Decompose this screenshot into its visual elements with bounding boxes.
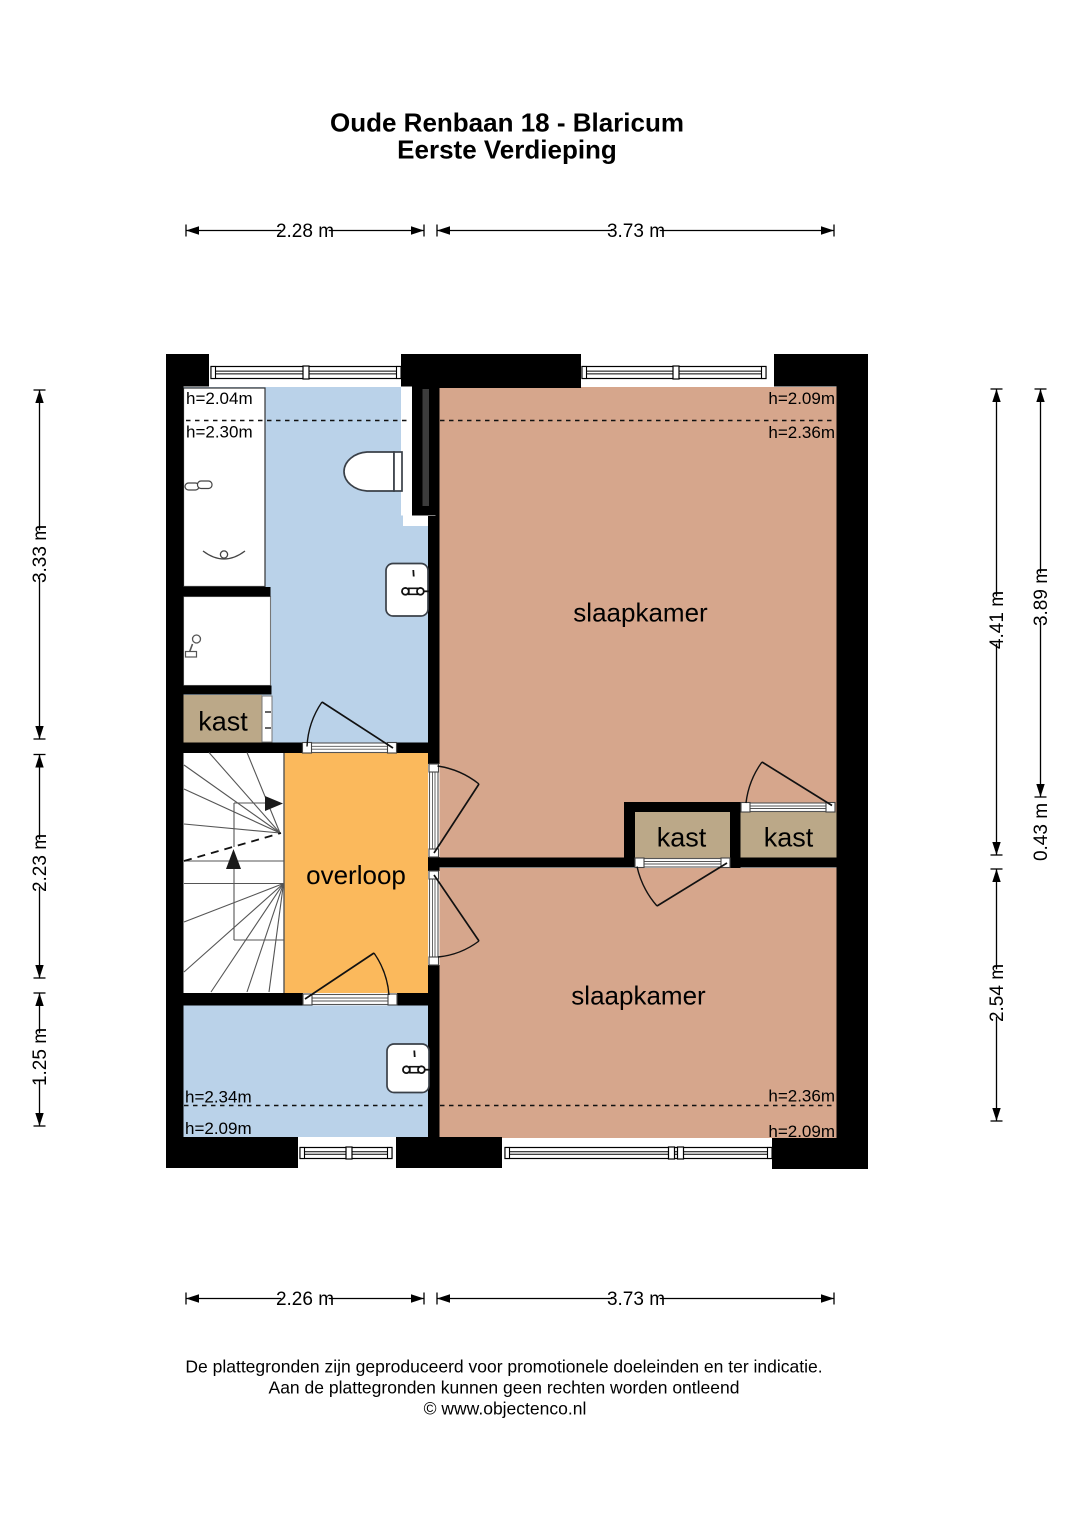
- svg-text:slaapkamer: slaapkamer: [573, 598, 708, 628]
- svg-text:2.54 m: 2.54 m: [987, 964, 1008, 1022]
- svg-text:h=2.30m: h=2.30m: [186, 423, 253, 442]
- svg-text:Eerste Verdieping: Eerste Verdieping: [397, 135, 617, 165]
- svg-text:3.73 m: 3.73 m: [607, 1289, 665, 1310]
- svg-text:h=2.09m: h=2.09m: [768, 1122, 835, 1141]
- svg-text:1.25 m: 1.25 m: [30, 1028, 51, 1086]
- svg-text:3.33 m: 3.33 m: [30, 525, 51, 583]
- svg-text:slaapkamer: slaapkamer: [571, 981, 706, 1011]
- svg-text:h=2.09m: h=2.09m: [185, 1119, 252, 1138]
- svg-text:overloop: overloop: [306, 860, 406, 890]
- svg-text:2.26 m: 2.26 m: [276, 1289, 334, 1310]
- svg-text:© www.objectenco.nl: © www.objectenco.nl: [424, 1399, 587, 1419]
- svg-text:kast: kast: [764, 823, 814, 853]
- svg-text:2.23 m: 2.23 m: [30, 834, 51, 892]
- svg-text:4.41 m: 4.41 m: [987, 591, 1008, 649]
- svg-text:h=2.36m: h=2.36m: [768, 1087, 835, 1106]
- svg-text:h=2.04m: h=2.04m: [186, 389, 253, 408]
- svg-text:De plattegronden zijn geproduc: De plattegronden zijn geproduceerd voor …: [185, 1357, 822, 1377]
- svg-text:3.73 m: 3.73 m: [607, 221, 665, 242]
- svg-text:h=2.09m: h=2.09m: [768, 389, 835, 408]
- svg-text:2.28 m: 2.28 m: [276, 221, 334, 242]
- svg-text:Oude Renbaan 18 - Blaricum: Oude Renbaan 18 - Blaricum: [330, 108, 684, 138]
- svg-text:h=2.36m: h=2.36m: [768, 423, 835, 442]
- svg-text:kast: kast: [657, 823, 707, 853]
- svg-text:Aan de plattegronden kunnen ge: Aan de plattegronden kunnen geen rechten…: [269, 1378, 740, 1398]
- svg-text:3.89 m: 3.89 m: [1031, 568, 1052, 626]
- svg-text:kast: kast: [198, 707, 248, 737]
- svg-text:0.43 m: 0.43 m: [1031, 803, 1052, 861]
- svg-text:h=2.34m: h=2.34m: [185, 1088, 252, 1107]
